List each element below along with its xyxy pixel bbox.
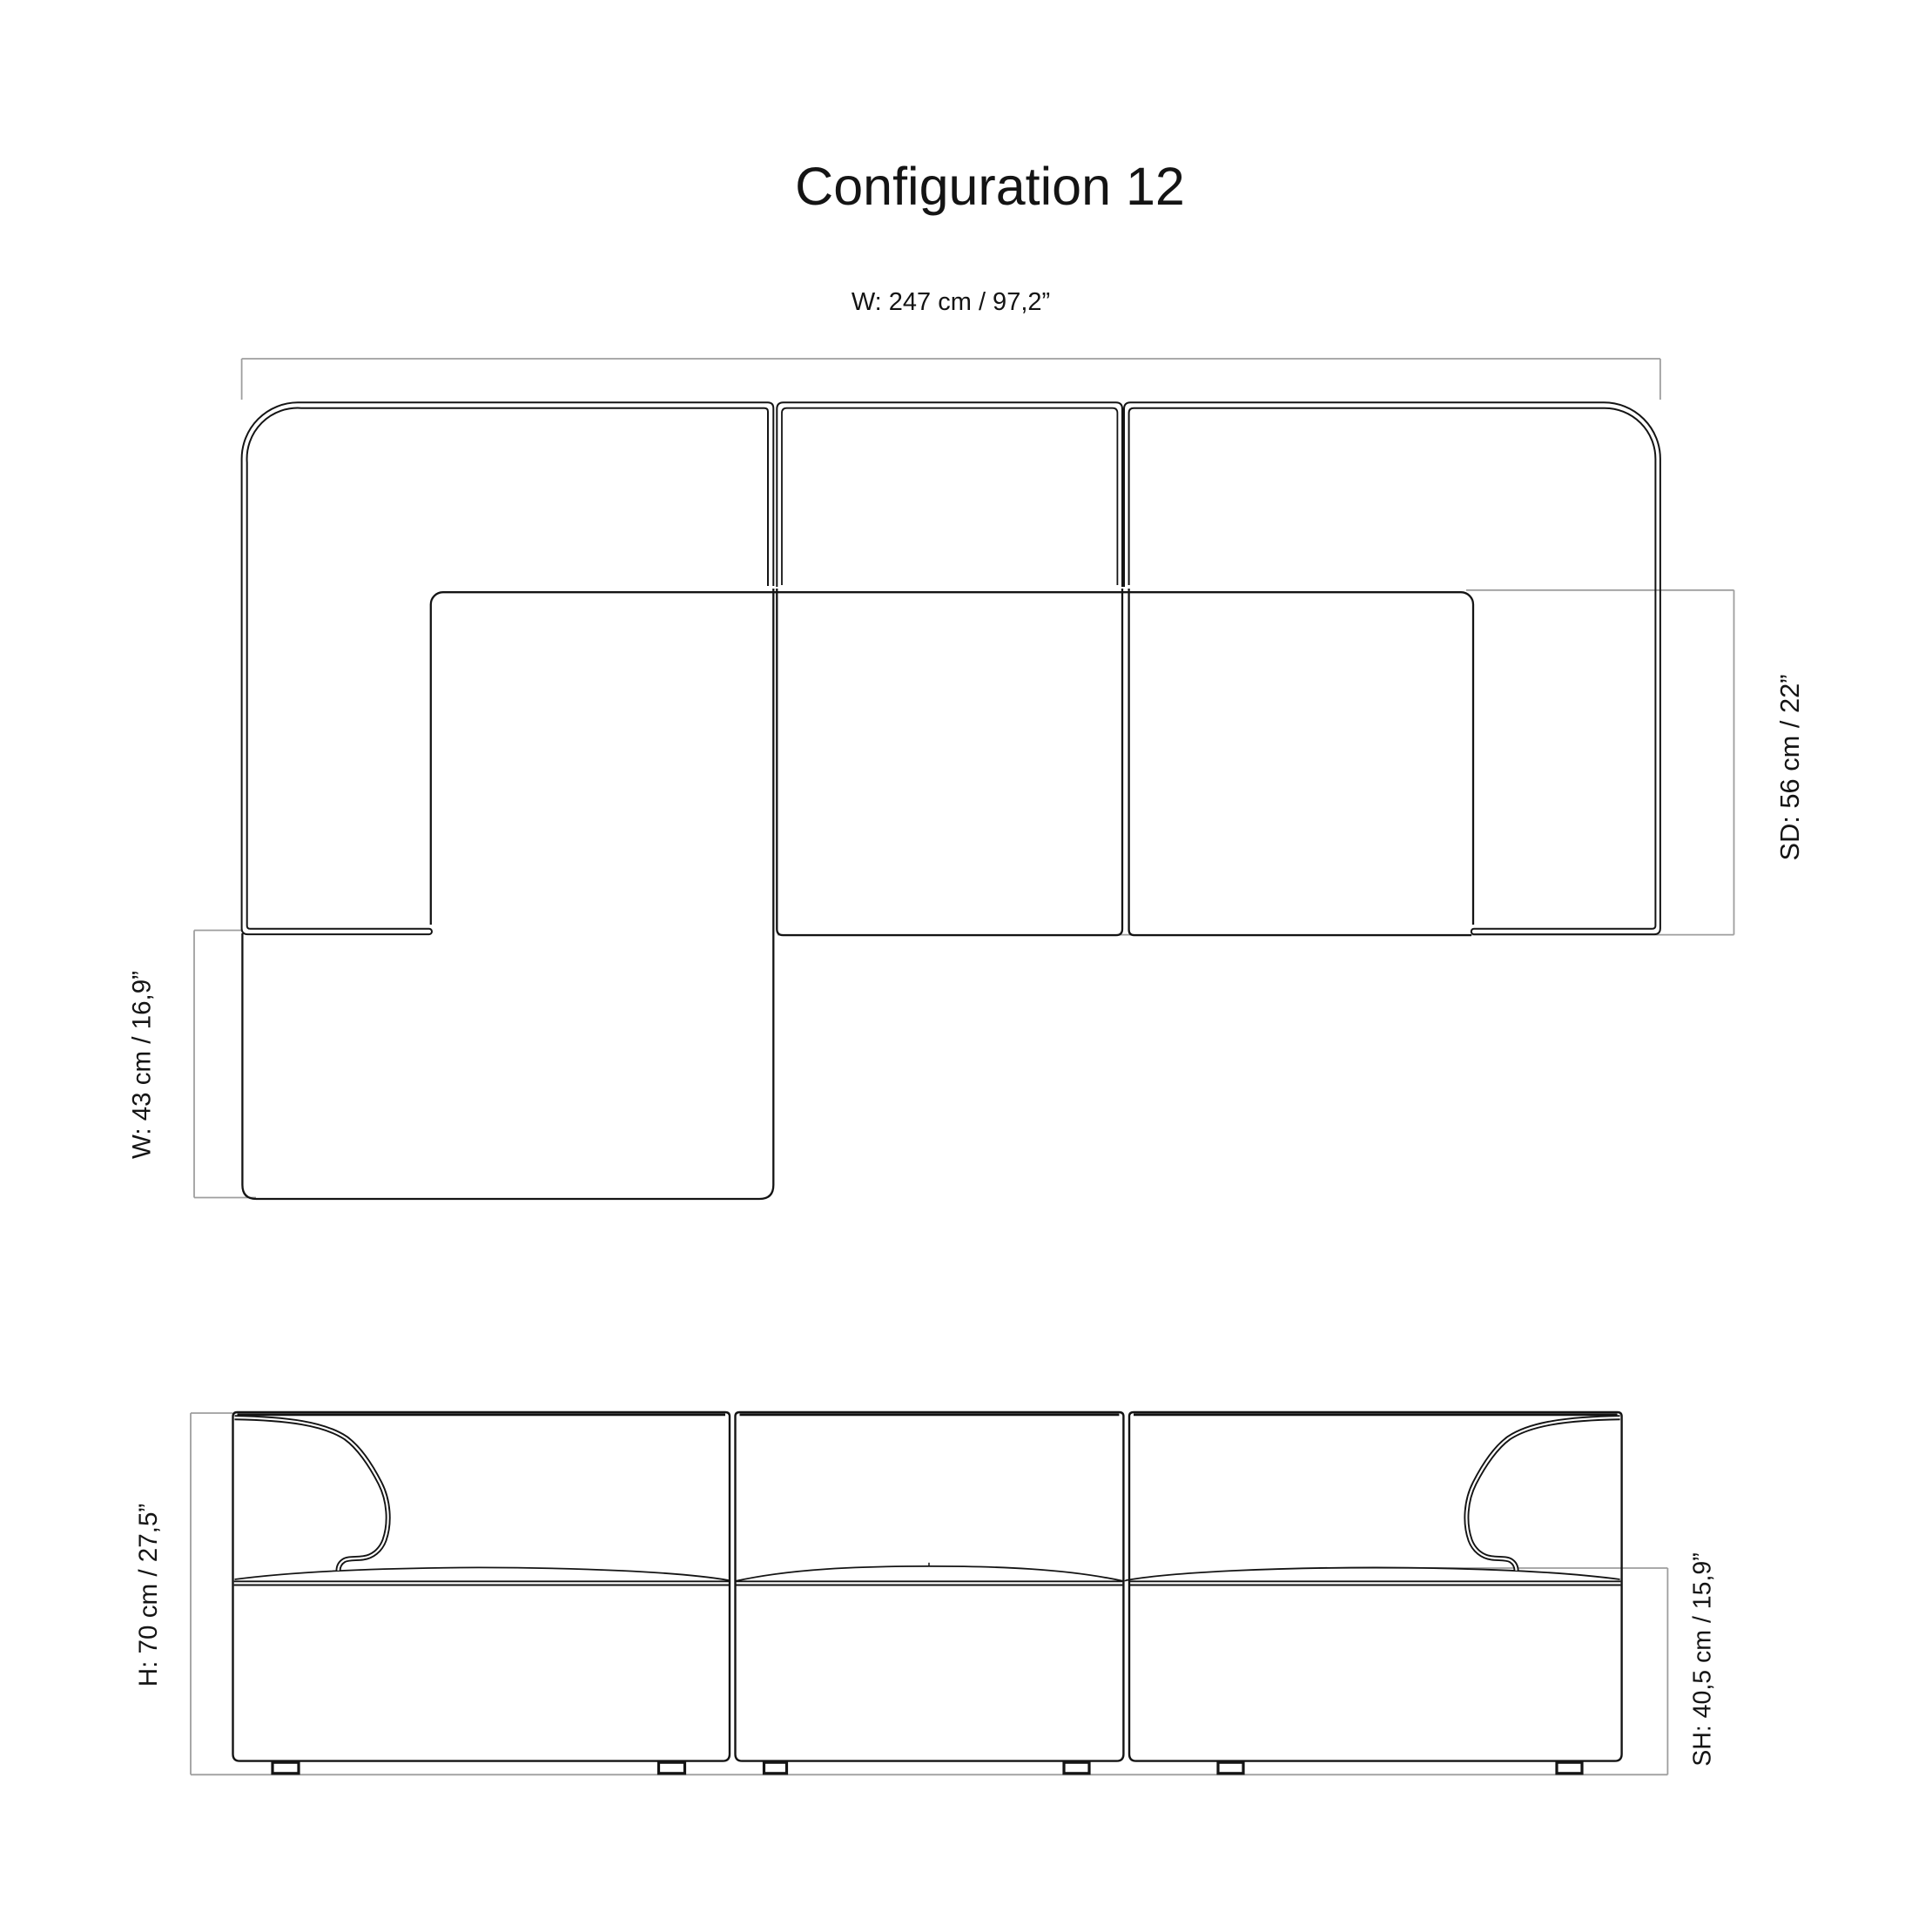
svg-text:Configuration 12: Configuration 12 [795, 157, 1185, 216]
svg-text:H: 70 cm / 27,5”: H: 70 cm / 27,5” [134, 1504, 163, 1687]
svg-text:W: 43 cm / 16,9”: W: 43 cm / 16,9” [128, 971, 157, 1159]
svg-text:W: 247 cm / 97,2”: W: 247 cm / 97,2” [852, 288, 1050, 316]
svg-text:SH: 40,5 cm / 15,9”: SH: 40,5 cm / 15,9” [1689, 1552, 1717, 1767]
svg-text:SD: 56 cm / 22”: SD: 56 cm / 22” [1774, 675, 1805, 861]
